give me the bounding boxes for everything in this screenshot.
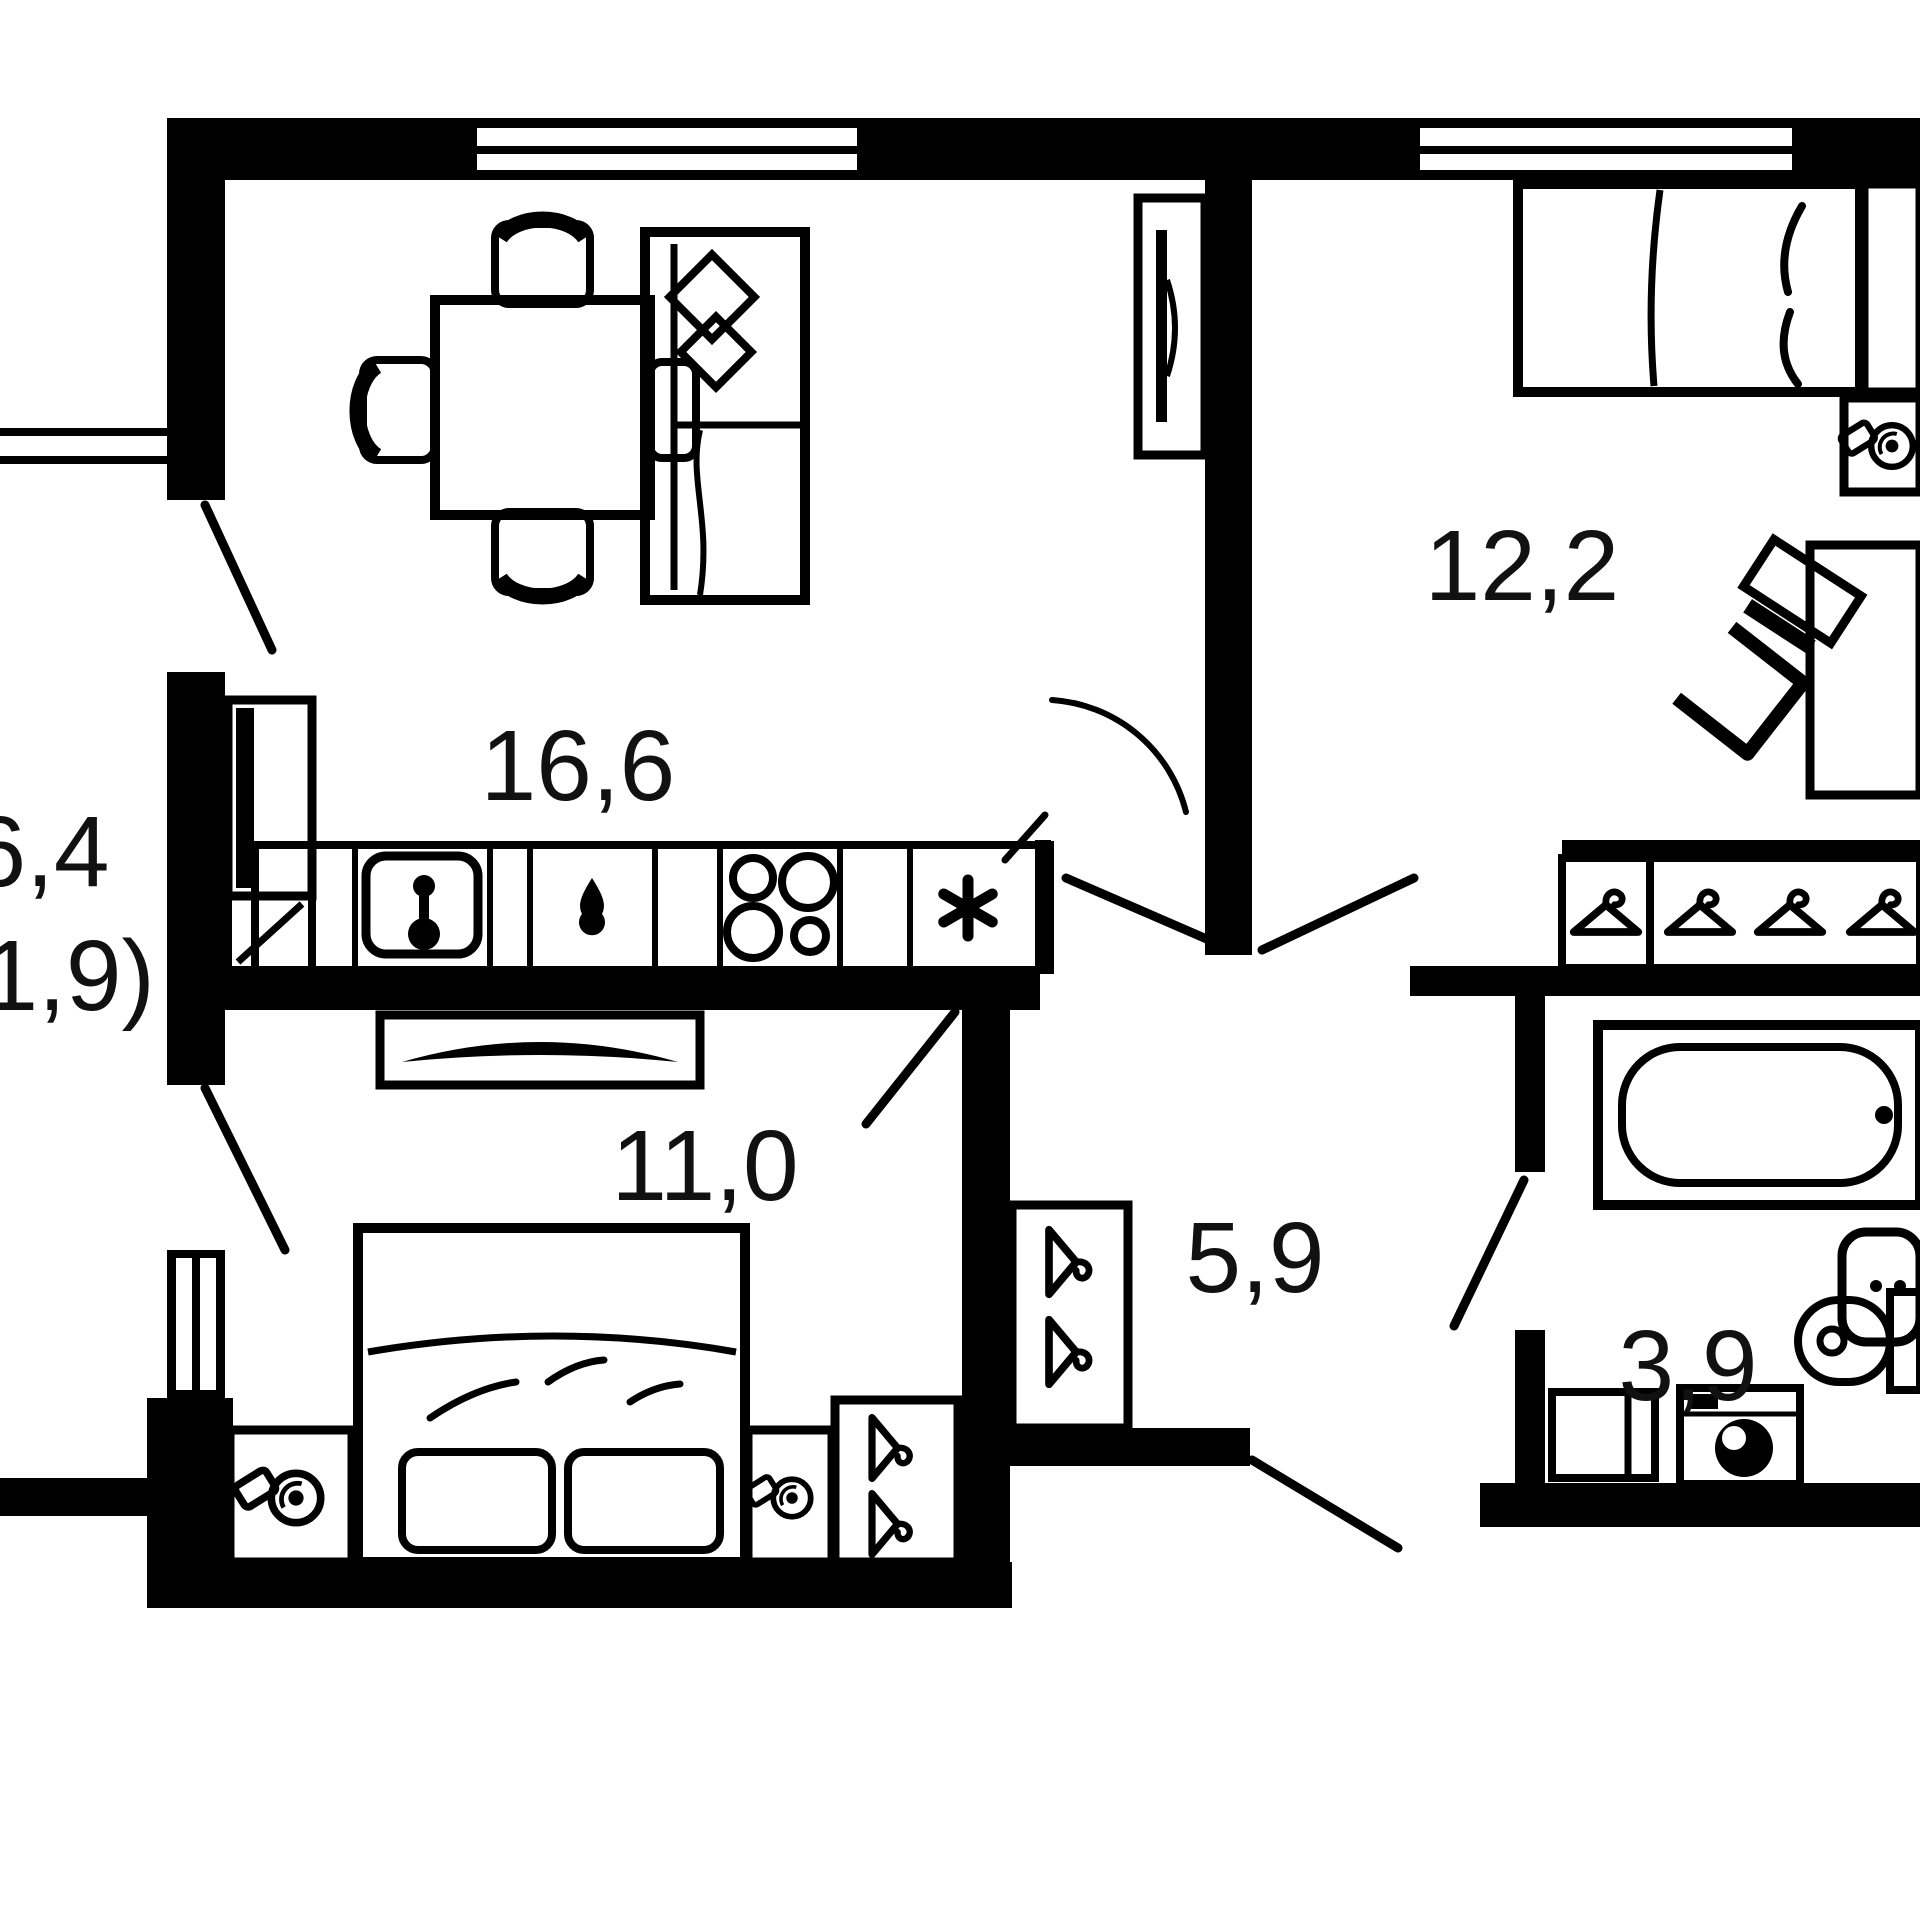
snowflake-icon — [944, 880, 992, 936]
pillow-left — [402, 1452, 552, 1550]
nightstand-bedroom-right — [1839, 398, 1920, 492]
window-bedroom-right — [1420, 118, 1792, 180]
hanger-icon — [1049, 1320, 1089, 1385]
blanket-line — [1651, 190, 1660, 386]
tall-cabinet-fridge — [228, 700, 312, 970]
bathtub — [1598, 1025, 1920, 1205]
hallway-closet — [1012, 1205, 1128, 1428]
dining-table — [435, 300, 650, 515]
wall-left-middle — [167, 672, 225, 1085]
wardrobe-bedroom-right — [1562, 858, 1920, 968]
windows — [0, 118, 1792, 1398]
hanger-icon — [1850, 892, 1915, 932]
label-balcony: 6,4 — [0, 796, 110, 908]
bed-single — [1518, 184, 1920, 392]
pillow-curve-2 — [1784, 312, 1798, 384]
sofa-pillow-2 — [681, 317, 752, 388]
hanger-icon — [1049, 1230, 1089, 1295]
tv-unit — [1138, 198, 1205, 455]
dresser-detail — [402, 1042, 678, 1062]
wall-bathroom-bottom — [1480, 1483, 1920, 1527]
sofa-pillow-1 — [670, 255, 755, 340]
hanger-icon — [872, 1418, 910, 1479]
wardrobe-bedroom-left — [835, 1400, 958, 1562]
chair-bottom-back — [500, 578, 585, 597]
sofa-seat-curve — [697, 430, 704, 595]
label-bathroom: 3,9 — [1618, 1310, 1757, 1422]
lamp-icon — [745, 1476, 811, 1517]
door-bedroom-right-leaf — [1262, 878, 1414, 950]
wall-left-upper — [167, 118, 225, 500]
door-balcony-living — [205, 505, 272, 650]
chair-left-back — [357, 366, 377, 456]
kitchen-sink — [366, 856, 478, 954]
kitchen-counter — [255, 845, 1050, 970]
label-hallway: 5,9 — [1185, 1202, 1324, 1314]
hanger-icon — [1668, 892, 1733, 932]
room-hallway — [1012, 1205, 1128, 1428]
blanket-edge — [368, 1336, 736, 1352]
bathroom-sink — [1842, 1232, 1920, 1342]
dresser — [380, 1015, 700, 1085]
sofa — [645, 232, 805, 600]
lamp-icon — [1839, 421, 1912, 467]
wall-hallway-bottom — [962, 1428, 1250, 1466]
wall-partition-living-bedroom — [1205, 180, 1252, 955]
door-bathroom — [1454, 1180, 1524, 1326]
doors — [205, 505, 1524, 1548]
bed-double — [358, 1228, 745, 1562]
hanger-icon — [872, 1494, 910, 1555]
label-bedroom-left: 11,0 — [611, 1110, 798, 1222]
bed-corner-box — [1864, 184, 1920, 392]
window-balcony-bedroom-left — [167, 1250, 225, 1398]
door-entrance — [1252, 1460, 1398, 1548]
door-balcony-bedroom-left — [205, 1088, 285, 1250]
desk — [1732, 539, 1920, 795]
drum-icon — [1715, 1419, 1773, 1477]
tv-screen — [1156, 230, 1167, 422]
door-kitchen-swing-arc — [1052, 700, 1186, 812]
hanger-icon — [1574, 892, 1639, 932]
wall-bedroom-left-right — [962, 1008, 1010, 1608]
room-living-kitchen — [228, 198, 1205, 970]
pillow-curve-1 — [1784, 206, 1802, 292]
stove-burners-icon — [727, 856, 834, 958]
wall-bottom-bedroom-left — [167, 1562, 1012, 1608]
room-bedroom-left — [230, 1015, 958, 1562]
bathtub-drain — [1875, 1106, 1893, 1124]
chair-top-back — [500, 219, 585, 238]
floor-plan-canvas: 16,6 12,2 11,0 5,9 3,9 6,4 (1,9) — [0, 0, 1920, 1920]
label-bedroom-right: 12,2 — [1425, 510, 1620, 622]
floor-plan: 16,6 12,2 11,0 5,9 3,9 6,4 (1,9) — [0, 0, 1920, 1920]
nightstand-left — [230, 1430, 352, 1562]
desk-chair — [1677, 627, 1803, 753]
wall-kitchen-bottom — [225, 970, 1040, 1010]
label-living-kitchen: 16,6 — [481, 710, 676, 822]
pillow-right — [568, 1452, 720, 1550]
nightstand-right — [745, 1430, 832, 1562]
window-living-room — [477, 118, 857, 180]
hanger-icon — [1758, 892, 1823, 932]
wall-bathroom-left-upper — [1515, 996, 1545, 1172]
wall-balcony-bottom — [0, 1478, 167, 1516]
water-drop-icon — [579, 878, 605, 935]
door-bedroom-left — [866, 1012, 955, 1124]
label-balcony-reduced: (1,9) — [0, 920, 155, 1032]
balcony-rail-lines — [0, 428, 167, 464]
lamp-icon — [234, 1469, 321, 1523]
